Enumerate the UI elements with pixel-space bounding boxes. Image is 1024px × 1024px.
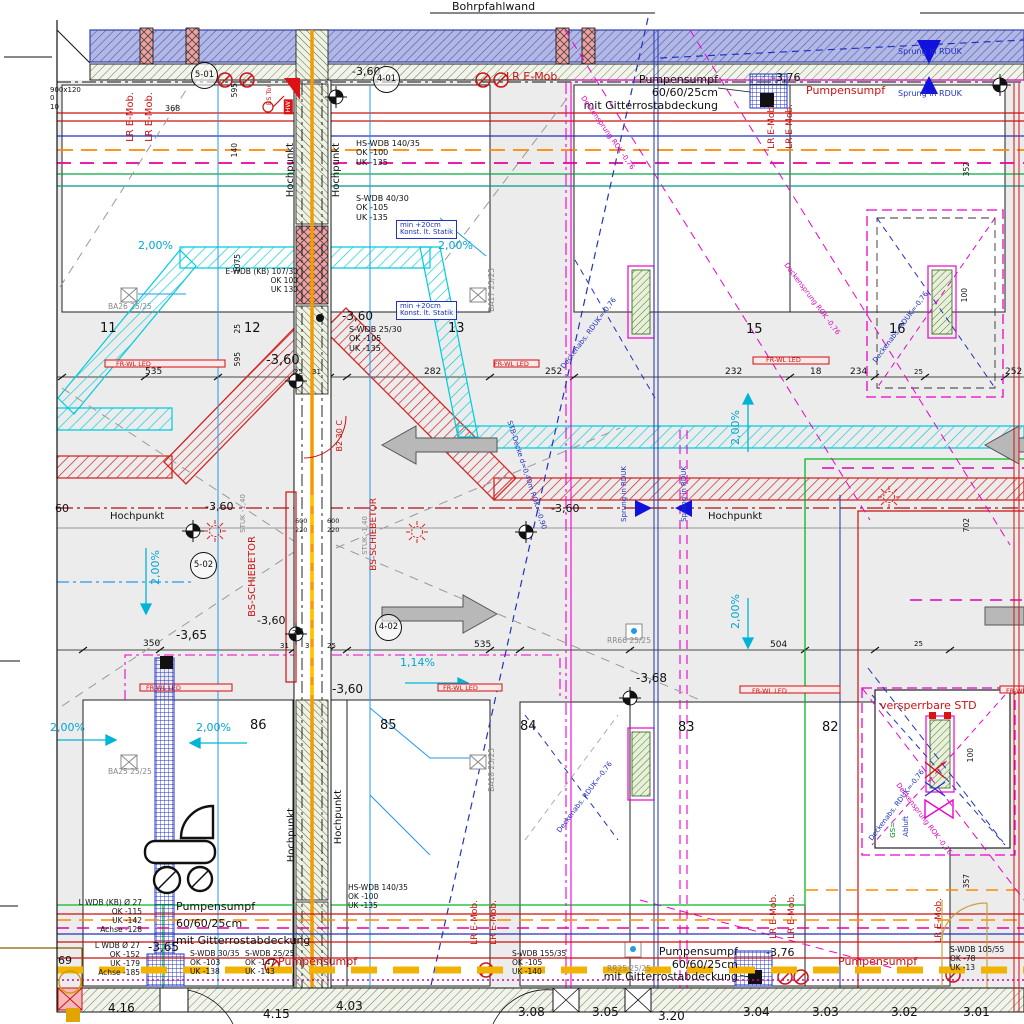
dim-vertical: 357: [963, 874, 971, 888]
dim: 3: [305, 643, 309, 650]
dim-vertical: 352: [963, 162, 971, 176]
dim: 282: [424, 368, 441, 377]
spot-level: -3,65: [148, 941, 179, 954]
slope-label: 1,14%: [400, 657, 435, 669]
dim: 18: [810, 368, 821, 377]
dim: 535: [474, 641, 491, 650]
dim: 25: [294, 369, 303, 376]
statik-note: min +20cmKonst. lt. Statik: [396, 220, 457, 239]
hochpunkt-label: Hochpunkt: [708, 512, 762, 523]
grid-bubble-label: 69: [58, 955, 72, 967]
room-number: 3.20: [658, 1010, 685, 1023]
spot-level: -3,60: [257, 615, 285, 627]
spot-level: -3,76: [772, 72, 800, 84]
wall-spec: HS-WDB 140/35OK -100UK -135: [348, 884, 408, 911]
slope-label: 2,00%: [730, 594, 742, 629]
hochpunkt-label: Hochpunkt: [286, 143, 297, 197]
dim: 232: [725, 368, 742, 377]
abluft-label: Abluft: [903, 816, 910, 837]
dim-vertical: 100: [967, 748, 975, 762]
spot-level: 60: [55, 503, 69, 515]
sliding-gate-label: BS-SCHIEBETOR: [370, 498, 379, 571]
wall-spec: L WDB Ø 27OK -152UK -179Achse -185: [82, 942, 140, 977]
room-number: 3.03: [812, 1006, 839, 1019]
spot-level: -3,60: [551, 503, 579, 515]
dim-vertical: 140: [231, 143, 239, 157]
dim-vertical: 702: [963, 518, 971, 532]
dim: 252: [1005, 368, 1022, 377]
dim: 252: [545, 368, 562, 377]
emob-lane-label: LR E-Mob.: [786, 104, 795, 149]
parking-number: 84: [520, 720, 537, 734]
dim: 220: [327, 527, 339, 534]
gate-label: BS Tor: [266, 85, 273, 105]
room-number: 3.02: [891, 1006, 918, 1019]
emob-lane-label: LR E-Mob.: [126, 92, 137, 142]
dim-block: 900x120010: [50, 86, 81, 111]
datum-circle: 5-02: [190, 552, 217, 579]
slope-label: 2,00%: [730, 410, 742, 445]
led-label: FR-WL LED: [1006, 688, 1024, 695]
emob-lane-label: LR E-Mob.: [471, 900, 480, 945]
emob-lane-label: LR E-Mob.: [490, 900, 499, 945]
hochpunkt-label: Hochpunkt: [287, 808, 298, 862]
dim: 25: [327, 643, 336, 650]
dim: 220: [295, 527, 307, 534]
parking-number: 12: [244, 322, 261, 336]
hw-tag: HW: [284, 99, 293, 114]
lintel-label: STUK -1,40: [240, 494, 247, 533]
slope-label: 2,00%: [138, 240, 173, 252]
dim: 234: [850, 368, 867, 377]
spot-level: -3,60: [332, 683, 363, 696]
dim: 25: [914, 641, 923, 648]
rduk-jump-label: Sprung in RDUK: [621, 466, 628, 522]
hochpunkt-label: Hochpunkt: [110, 512, 164, 523]
hochpunkt-label: Hochpunkt: [334, 790, 345, 844]
dim: 504: [770, 641, 787, 650]
rduk-jump-label: Sprung in RDUK: [898, 90, 962, 98]
wall-spec: S-WDB 105/55OK -78UK -13: [950, 946, 1004, 973]
spot-level: -3,65: [176, 629, 207, 642]
datum-circle: 4-02: [375, 614, 402, 641]
pump-sump-label: Pumpensumpf: [806, 85, 885, 97]
dim-vertical: 25: [234, 324, 242, 334]
pump-sump-note: Pumpensumpf60/60/25cmmit Gitterrostabdec…: [598, 946, 738, 984]
datum-circle: 5-01: [191, 62, 218, 89]
cad-floorplan-parking-garage: Bohrpfahlwand -3,76 Pumpensumpf60/60/25c…: [0, 0, 1024, 1024]
emob-lane-label: LR E-Mob.: [788, 894, 797, 939]
led-label: FR-WL LED: [752, 688, 787, 695]
rduk-jump-label: Sprung in RDUK: [681, 466, 688, 522]
room-number: 3.01: [963, 1006, 990, 1019]
parking-number: 11: [100, 322, 117, 336]
dim: 535: [145, 368, 162, 377]
column-ref: BA17 25/25: [488, 268, 496, 312]
spot-level: -3,76: [766, 947, 794, 959]
lockable-std-label: versperrbare STD: [880, 700, 977, 712]
column-ref: BA25 25/25: [108, 768, 152, 776]
wall-spec: S-WDB 155/35OK -105UK -140: [512, 950, 566, 977]
dim-vertical: 100: [961, 288, 969, 302]
parking-number: 15: [746, 323, 763, 337]
dim: 25: [914, 369, 923, 376]
gs-label: GS=: [890, 822, 897, 838]
parking-number: 13: [448, 322, 465, 336]
spot-level: -3,68: [636, 672, 667, 685]
dim: 31: [312, 369, 321, 376]
dim: 350: [143, 640, 160, 649]
dim-vertical: 1075: [234, 254, 242, 273]
emob-lane-label: LR E-Mob.: [935, 898, 944, 943]
room-number: 3.04: [743, 1006, 770, 1019]
emob-lane-label: LR E-Mob.: [768, 104, 777, 149]
hochpunkt-label: Hochpunkt: [332, 143, 343, 197]
column-ref: BA18 25/25: [488, 748, 496, 792]
emob-lane-label: LR E-Mob.: [145, 92, 156, 142]
led-label: FR-WL LED: [443, 685, 478, 692]
wall-spec: L WDB (KB) Ø 27OK -115UK -142Achse -128: [64, 899, 142, 934]
column-ref: BA26 25/25: [108, 303, 152, 311]
slope-label: 2,00%: [196, 722, 231, 734]
emob-lane-label: LR E-Mob.: [770, 894, 779, 939]
dim-vertical: 595: [231, 83, 239, 97]
dim-vertical: 595: [234, 352, 242, 366]
room-number: 4.15: [263, 1008, 290, 1021]
shaft-marker: [66, 1008, 80, 1022]
dim: 25: [292, 630, 301, 637]
dim: 600: [327, 518, 339, 525]
door-tag: B2 30 C: [336, 420, 344, 451]
slope-label: 2,00%: [50, 722, 85, 734]
dim: 31: [280, 643, 289, 650]
led-label: FR-WL LED: [766, 357, 801, 364]
room-number: 4.16: [108, 1002, 135, 1015]
pump-sump-label: Pumpensumpf: [838, 956, 917, 968]
spot-level: -3,60: [342, 310, 373, 323]
datum-circle: 4-01: [373, 66, 400, 93]
dim: 600: [295, 518, 307, 525]
arrow-fragment: [985, 607, 1024, 625]
parking-number: 85: [380, 719, 397, 733]
pump-sump-note: Pumpensumpf60/60/25cmmit Gitterrostabdec…: [176, 898, 310, 949]
led-label: FR-WL LED: [116, 361, 151, 368]
emob-lane-label: LR E-Mob.: [506, 71, 561, 83]
wall-spec: S-WDB 30/35OK -103UK -138: [190, 950, 240, 977]
column-ref: RR66 25/25: [607, 637, 651, 645]
room-number: 3.08: [518, 1006, 545, 1019]
lintel-label: STUK -1,40: [362, 516, 369, 555]
led-label: FR-WL LED: [494, 361, 529, 368]
room-number: 3.05: [592, 1006, 619, 1019]
wall-label-bohrpfahlwand: Bohrpfahlwand: [452, 1, 535, 13]
rduk-jump-label: Sprung in RDUK: [898, 48, 962, 56]
parking-number: 82: [822, 721, 839, 735]
statik-note: min +20cmKonst. lt. Statik: [396, 301, 457, 320]
slope-label: 2,00%: [438, 240, 473, 252]
wall-spec: S-WDB 25/30OK -105UK -135: [349, 325, 402, 353]
pump-sump-label: Pumpensumpf: [278, 956, 357, 968]
wall-spec: S-WDB 40/30OK -105UK -135: [356, 194, 409, 222]
led-label: FR-WL LED: [146, 685, 181, 692]
room-number: 4.03: [336, 1000, 363, 1013]
spot-level: -3,60: [205, 501, 233, 513]
wall-spec: HS-WDB 140/35OK -100UK -135: [356, 139, 420, 167]
slope-label: 2,00%: [150, 550, 162, 585]
parking-number: 86: [250, 719, 267, 733]
dim: 368: [165, 105, 180, 113]
parking-number: 83: [678, 721, 695, 735]
sliding-gate-label: BS-SCHIEBETOR: [248, 536, 259, 617]
spot-level: -3,60: [266, 354, 300, 368]
